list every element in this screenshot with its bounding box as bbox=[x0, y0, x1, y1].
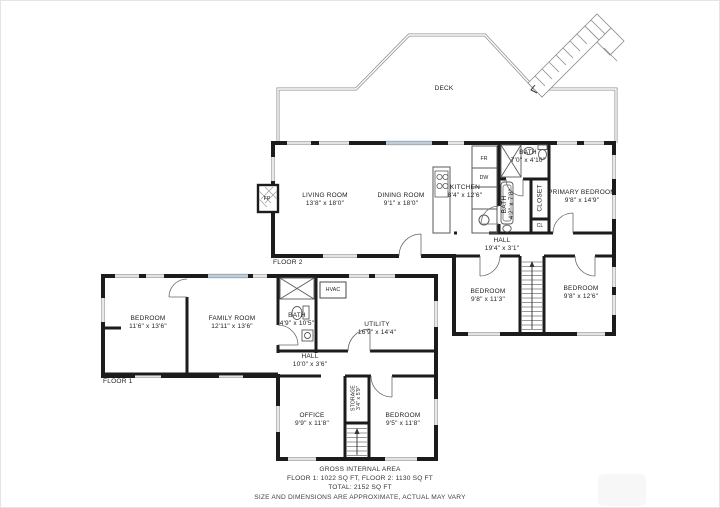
room-label-bedroom-left: BEDROOM9'8" x 11'3" bbox=[471, 288, 506, 304]
room-label-primary-bedroom: PRIMARY BEDROOM9'8" x 14'9" bbox=[548, 189, 616, 205]
fireplace-label: FP bbox=[264, 196, 271, 203]
room-label-bedroom-floor1: BEDROOM11'6" x 13'6" bbox=[129, 315, 167, 331]
room-label-bedroom-right: BEDROOM9'8" x 12'6" bbox=[564, 285, 599, 301]
room-label-family-room: FAMILY ROOM12'11" x 13'6" bbox=[209, 315, 256, 331]
floor2-title: FLOOR 2 bbox=[273, 259, 303, 266]
disclaimer-line: SIZE AND DIMENSIONS ARE APPROXIMATE, ACT… bbox=[1, 494, 719, 503]
dishwasher-label: DW bbox=[480, 175, 489, 182]
room-label-hall-floor2: HALL19'4" x 3'1" bbox=[485, 237, 519, 253]
deck-label: DECK bbox=[435, 85, 454, 93]
deck-stairs bbox=[528, 14, 624, 97]
room-label-closet: CLOSET bbox=[536, 184, 543, 211]
room-label-dining-room: DINING ROOM9'1" x 18'0" bbox=[378, 192, 425, 208]
floorplan-drawing bbox=[1, 1, 720, 508]
room-label-hall-floor1: HALL10'0" x 3'6" bbox=[293, 353, 327, 369]
floor-plan-image: DECK LIVING ROOM13'8" x 18'0" DINING ROO… bbox=[0, 0, 720, 508]
floor2-entry-gap bbox=[399, 252, 421, 260]
floor1-exterior-walls bbox=[103, 276, 436, 459]
room-label-office: OFFICE9'9" x 11'8" bbox=[295, 412, 329, 428]
room-label-utility: UTILITY16'9" x 14'4" bbox=[358, 321, 396, 337]
total-area-line: TOTAL: 2152 SQ FT bbox=[1, 484, 719, 493]
room-label-bath-floor2-top: BATH7'0" x 4'10" bbox=[511, 149, 545, 165]
floor1-title: FLOOR 1 bbox=[103, 378, 133, 385]
room-label-living-room: LIVING ROOM13'8" x 18'0" bbox=[302, 192, 348, 208]
fridge-label: FR bbox=[480, 156, 487, 163]
room-label-kitchen: KITCHEN8'4" x 12'6" bbox=[448, 184, 482, 200]
floor-areas-line: FLOOR 1: 1022 SQ FT, FLOOR 2: 1130 SQ FT bbox=[1, 475, 719, 484]
hvac-label: HVAC bbox=[326, 287, 340, 294]
room-label-storage: STORAGE3'4" x 5'9" bbox=[351, 385, 362, 411]
room-label-bath-floor1: BATH4'9" x 10'5" bbox=[280, 312, 314, 328]
area-summary: GROSS INTERNAL AREA FLOOR 1: 1022 SQ FT,… bbox=[1, 466, 719, 503]
gross-internal-area-heading: GROSS INTERNAL AREA bbox=[1, 466, 719, 475]
room-label-cl: CL bbox=[537, 223, 544, 230]
room-label-bath-floor2-side: BATH4'2" x 7'8" bbox=[501, 189, 515, 220]
room-label-bedroom2-floor1: BEDROOM9'5" x 11'8" bbox=[386, 412, 421, 428]
